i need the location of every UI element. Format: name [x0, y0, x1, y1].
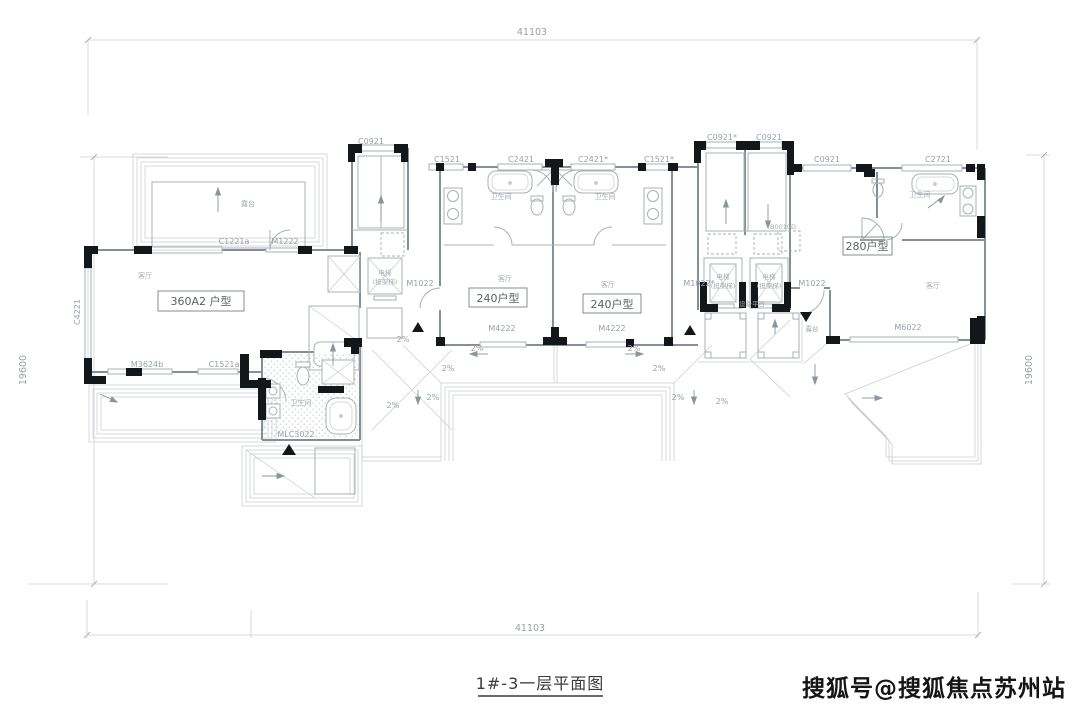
- drawing-title: 1#-3一层平面图: [476, 674, 605, 693]
- room-label-elevator: 电梯: [763, 272, 777, 281]
- room-label-bath: 卫生间: [491, 192, 512, 201]
- drawing-title-group: 1#-3一层平面图: [476, 674, 605, 696]
- slope-label: 2%: [628, 344, 641, 353]
- opening-label: C1521: [434, 155, 460, 164]
- opening-label: C4221: [73, 299, 82, 325]
- floor-plan-drawing: 41103 41103 19600 19600: [0, 0, 1080, 711]
- dim-top: 41103: [517, 27, 547, 38]
- arrows: [100, 188, 944, 479]
- room-label-living: 客厅: [926, 281, 940, 290]
- opening-label: M1022: [406, 279, 433, 288]
- room-label-stretcher: (担架梯): [711, 281, 736, 290]
- slope-label: 2%: [442, 364, 455, 373]
- terrace-eaves: [89, 154, 981, 506]
- opening-label: C0921: [756, 133, 782, 142]
- slope-labels: 2% 2% 2% 2% 2% 2% 2% 2% 2%: [387, 335, 729, 410]
- room-label-elevator: 电梯: [717, 272, 731, 281]
- opening-label: C1521a: [209, 360, 240, 369]
- opening-label: M6022: [894, 323, 921, 332]
- floor-plan-page: 41103 41103 19600 19600: [0, 0, 1080, 711]
- opening-label: MLC3022: [277, 430, 314, 439]
- room-label-terrace: 露台: [241, 199, 255, 208]
- opening-label: B0010D: [770, 223, 796, 231]
- dimension-labels: 41103 41103 19600 19600: [18, 27, 1035, 634]
- room-label-bath: 卫生间: [595, 192, 616, 201]
- room-label-bath: 卫生间: [910, 190, 931, 199]
- walls: [88, 145, 985, 440]
- louver-platforms: [367, 308, 799, 358]
- slope-label: 2%: [387, 401, 400, 410]
- room-label-living: 客厅: [498, 274, 512, 283]
- room-label-elevator: 电梯: [379, 268, 393, 277]
- opening-label: M1022: [798, 279, 825, 288]
- opening-label: C2421: [508, 155, 534, 164]
- dim-left: 19600: [18, 355, 29, 385]
- slope-label: 2%: [716, 397, 729, 406]
- opening-label: C1221a: [219, 237, 250, 246]
- unit-label-360A2: 360A2 户型: [170, 294, 231, 308]
- opening-label: C0921*: [707, 133, 737, 142]
- room-label-platform: 设备平台: [739, 299, 765, 308]
- watermark: 搜狐号@搜狐焦点苏州站: [802, 675, 1066, 702]
- opening-label: C1521*: [644, 155, 674, 164]
- slope-label: 2%: [427, 393, 440, 402]
- room-label-living: 客厅: [601, 280, 615, 289]
- dim-right: 19600: [1024, 355, 1035, 385]
- slope-label: 2%: [653, 364, 666, 373]
- slope-label: 2%: [471, 344, 484, 353]
- room-label-stretcher: (担架梯): [373, 277, 398, 286]
- slope-label: 2%: [672, 393, 685, 402]
- elevators: [328, 231, 800, 308]
- opening-label: C0921: [814, 155, 840, 164]
- entry-markers: [282, 312, 812, 455]
- structural-columns: [84, 141, 985, 420]
- room-label-bath: 卫生间: [291, 398, 312, 407]
- opening-label: C2721: [925, 155, 951, 164]
- unit-label-240-left: 240户型: [477, 291, 520, 305]
- room-label-living: 客厅: [138, 271, 152, 280]
- opening-label: M4222: [488, 324, 515, 333]
- slope-label: 2%: [397, 335, 410, 344]
- unit-label-240-right: 240户型: [591, 297, 634, 311]
- room-labels: 卫生间 卫生间 卫生间 卫生间 电梯 电梯 电梯 (担架梯) (担架梯) (担架…: [138, 190, 940, 407]
- opening-label: M3624b: [131, 360, 163, 369]
- unit-label-280: 280户型: [846, 239, 889, 253]
- opening-label: M4222: [598, 324, 625, 333]
- opening-label: C0921: [358, 137, 384, 146]
- room-label-stretcher: (担架梯): [757, 281, 782, 290]
- dim-bottom: 41103: [515, 623, 545, 634]
- opening-label: M1222: [271, 237, 298, 246]
- room-label-terrace: 露台: [806, 324, 819, 333]
- opening-label: C2421*: [578, 155, 608, 164]
